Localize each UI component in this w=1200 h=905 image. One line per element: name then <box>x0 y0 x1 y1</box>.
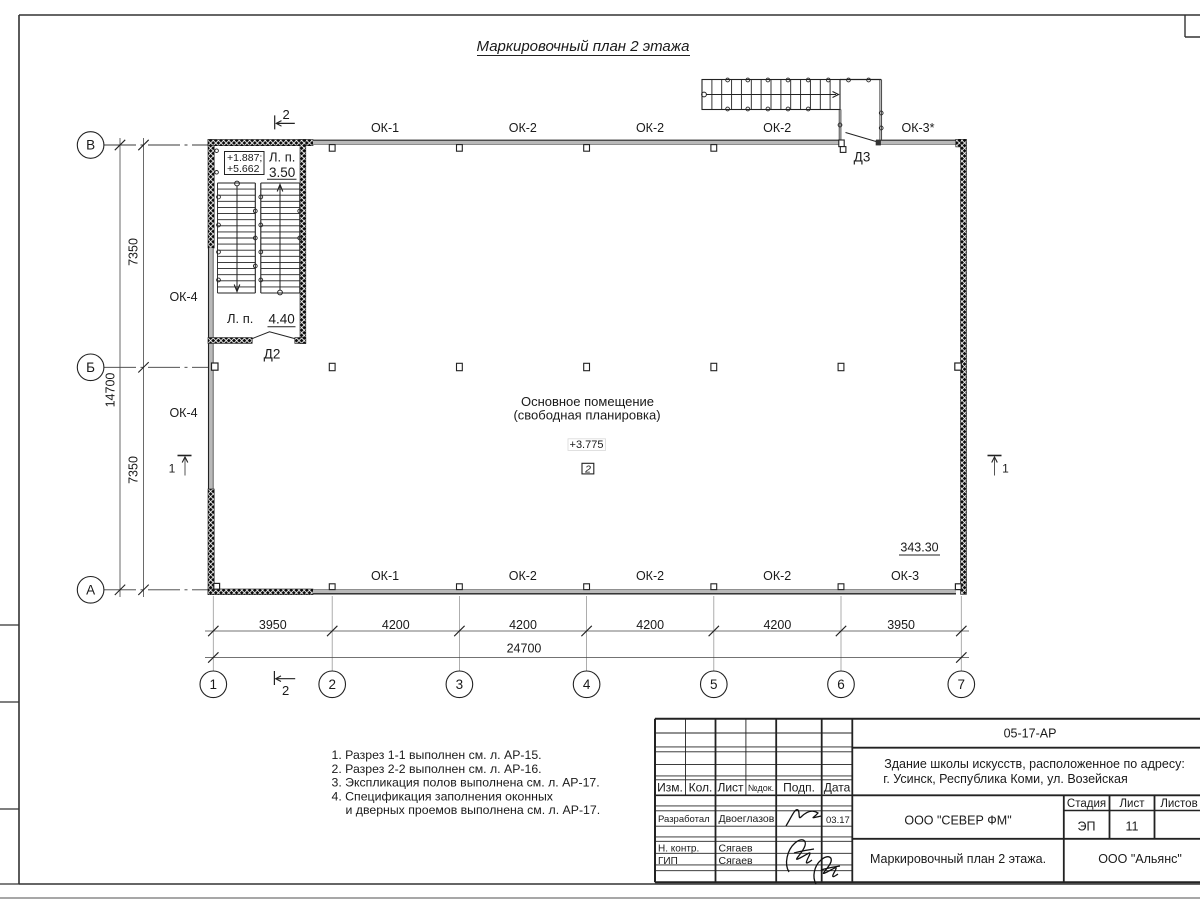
svg-text:Дата: Дата <box>824 781 851 795</box>
svg-text:3.50: 3.50 <box>269 165 295 180</box>
svg-text:ООО "Альянс": ООО "Альянс" <box>1098 852 1182 866</box>
svg-text:2: 2 <box>584 463 591 475</box>
svg-text:1: 1 <box>210 677 218 692</box>
svg-text:ОК-1: ОК-1 <box>371 121 399 135</box>
svg-text:2: 2 <box>328 677 336 692</box>
svg-text:А: А <box>86 583 95 598</box>
svg-text:14700: 14700 <box>104 373 118 408</box>
svg-text:ОК-2: ОК-2 <box>636 121 664 135</box>
svg-text:7350: 7350 <box>127 456 141 484</box>
svg-text:Лист: Лист <box>717 781 744 795</box>
svg-text:ОК-2: ОК-2 <box>509 569 537 583</box>
svg-text:ОК-2: ОК-2 <box>763 569 791 583</box>
svg-text:1. Разрез 1-1 выполнен см. л.: 1. Разрез 1-1 выполнен см. л. АР-15. <box>332 748 542 762</box>
svg-text:Л. п.: Л. п. <box>227 311 253 326</box>
svg-text:3. Экспликация полов выполнена: 3. Экспликация полов выполнена см. л. АР… <box>332 776 600 790</box>
svg-text:4: 4 <box>583 677 591 692</box>
svg-text:№док.: №док. <box>748 783 774 793</box>
svg-text:3: 3 <box>456 677 464 692</box>
svg-text:2. Разрез 2-2 выполнен см. л.: 2. Разрез 2-2 выполнен см. л. АР-16. <box>332 762 542 776</box>
svg-text:+3.775: +3.775 <box>570 439 604 451</box>
svg-text:7350: 7350 <box>127 238 141 266</box>
svg-text:4.40: 4.40 <box>269 312 295 327</box>
svg-text:2: 2 <box>283 107 290 122</box>
svg-text:ОК-2: ОК-2 <box>636 569 664 583</box>
svg-text:Листов: Листов <box>1160 798 1197 810</box>
svg-text:Лист: Лист <box>1120 798 1146 810</box>
svg-text:05-17-АР: 05-17-АР <box>1004 727 1057 741</box>
svg-text:1: 1 <box>1002 462 1009 476</box>
svg-text:5: 5 <box>710 677 718 692</box>
svg-text:7: 7 <box>958 677 966 692</box>
svg-text:3950: 3950 <box>259 618 287 632</box>
svg-text:Здание школы искусств, располо: Здание школы искусств, расположенное по … <box>884 757 1185 771</box>
svg-text:Б: Б <box>86 360 95 375</box>
svg-text:и дверных проемов выполнена см: и дверных проемов выполнена см. л. АР-17… <box>346 803 601 817</box>
svg-text:ЭП: ЭП <box>1078 820 1096 834</box>
svg-text:ОК-4: ОК-4 <box>169 290 197 304</box>
svg-text:ОК-1: ОК-1 <box>371 569 399 583</box>
svg-text:4200: 4200 <box>382 618 410 632</box>
svg-text:24700: 24700 <box>507 641 542 655</box>
svg-text:1: 1 <box>169 462 176 476</box>
svg-text:03.17: 03.17 <box>826 815 850 826</box>
svg-text:11: 11 <box>1126 820 1139 834</box>
svg-text:Кол.: Кол. <box>689 781 713 795</box>
svg-text:Разработал: Разработал <box>658 814 710 825</box>
svg-text:Сягаев: Сягаев <box>719 855 754 867</box>
svg-text:В: В <box>86 138 95 153</box>
svg-text:+5.662: +5.662 <box>227 163 260 175</box>
svg-text:Подп.: Подп. <box>783 781 815 795</box>
svg-text:Маркировочный план 2 этажа.: Маркировочный план 2 этажа. <box>870 852 1046 866</box>
svg-text:ОК-3: ОК-3 <box>891 569 919 583</box>
svg-text:Изм.: Изм. <box>657 781 683 795</box>
svg-text:3950: 3950 <box>887 618 915 632</box>
svg-text:6: 6 <box>837 677 845 692</box>
svg-text:ОК-3*: ОК-3* <box>902 121 935 135</box>
svg-text:Сягаев: Сягаев <box>719 843 754 855</box>
svg-text:343.30: 343.30 <box>900 541 938 555</box>
svg-text:Стадия: Стадия <box>1067 798 1106 810</box>
svg-text:ОК-4: ОК-4 <box>169 406 197 420</box>
svg-text:Маркировочный план 2 этажа: Маркировочный план 2 этажа <box>477 38 690 55</box>
svg-text:Н. контр.: Н. контр. <box>658 844 699 855</box>
svg-text:Л. п.: Л. п. <box>269 150 295 165</box>
svg-text:Д2: Д2 <box>264 347 281 362</box>
svg-text:4200: 4200 <box>763 618 791 632</box>
svg-text:2: 2 <box>282 683 289 698</box>
svg-text:4200: 4200 <box>636 618 664 632</box>
svg-text:г. Усинск, Республика Коми, ул: г. Усинск, Республика Коми, ул. Возейска… <box>883 772 1127 786</box>
svg-text:4. Спецификация заполнения око: 4. Спецификация заполнения оконных <box>332 789 554 803</box>
svg-text:Д3: Д3 <box>854 150 871 165</box>
svg-text:Двоеглазов: Двоеглазов <box>719 813 775 825</box>
svg-text:ОК-2: ОК-2 <box>509 121 537 135</box>
svg-text:(свободная планировка): (свободная планировка) <box>513 408 660 423</box>
svg-text:ООО "СЕВЕР ФМ": ООО "СЕВЕР ФМ" <box>904 814 1011 828</box>
svg-text:4200: 4200 <box>509 618 537 632</box>
svg-text:ОК-2: ОК-2 <box>763 121 791 135</box>
svg-text:ГИП: ГИП <box>658 856 678 867</box>
